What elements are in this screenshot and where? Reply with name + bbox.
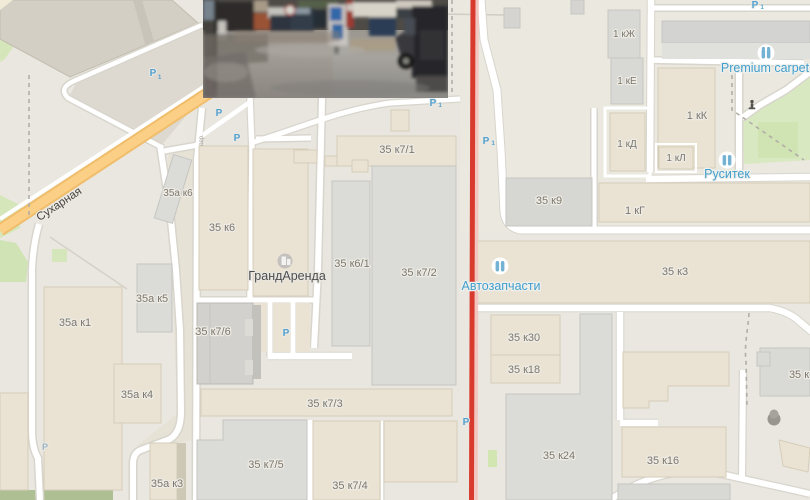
- svg-text:35 к7/3: 35 к7/3: [307, 398, 342, 410]
- svg-text:35а к1: 35а к1: [59, 317, 91, 329]
- svg-text:P: P: [463, 417, 470, 428]
- svg-text:P: P: [483, 136, 490, 147]
- svg-text:35 к7/1: 35 к7/1: [379, 144, 414, 156]
- svg-text:1 кЕ: 1 кЕ: [617, 76, 637, 87]
- svg-text:1 кГ: 1 кГ: [625, 205, 645, 217]
- svg-text:35 к6: 35 к6: [209, 222, 235, 234]
- svg-text:1 кД: 1 кД: [617, 139, 637, 150]
- svg-text:35 к7/4: 35 к7/4: [332, 480, 367, 492]
- svg-text:35а к5: 35а к5: [136, 293, 168, 305]
- svg-text:1 кЛ: 1 кЛ: [666, 153, 685, 164]
- svg-text:ГрандАренда: ГрандАренда: [248, 269, 326, 283]
- svg-text:P: P: [752, 0, 759, 11]
- svg-text:35а к6: 35а к6: [163, 188, 193, 199]
- svg-text:пер.: пер.: [199, 134, 205, 146]
- svg-text:35а к4: 35а к4: [121, 389, 153, 401]
- svg-text:P: P: [42, 442, 48, 452]
- svg-text:Автозапчасти: Автозапчасти: [462, 279, 541, 293]
- svg-text:P: P: [234, 133, 241, 144]
- svg-text:35 к24: 35 к24: [543, 450, 575, 462]
- svg-text:35а к3: 35а к3: [151, 478, 183, 490]
- svg-text:1 кК: 1 кК: [687, 110, 708, 122]
- svg-text:35 к6/1: 35 к6/1: [334, 258, 369, 270]
- svg-text:35 к: 35 к: [789, 369, 809, 381]
- svg-text:Руситек: Руситек: [704, 167, 750, 181]
- svg-text:35 к18: 35 к18: [508, 364, 540, 376]
- svg-text:P: P: [430, 98, 437, 109]
- svg-text:35 к30: 35 к30: [508, 332, 540, 344]
- svg-text:35 к7/6: 35 к7/6: [195, 326, 230, 338]
- svg-text:35 к7/5: 35 к7/5: [248, 459, 283, 471]
- svg-text:35 к7/2: 35 к7/2: [401, 267, 436, 279]
- svg-text:P: P: [283, 328, 290, 339]
- svg-text:35 к9: 35 к9: [536, 195, 562, 207]
- svg-text:35 к16: 35 к16: [647, 455, 679, 467]
- svg-text:Premium carpet: Premium carpet: [721, 61, 810, 75]
- svg-text:1 кЖ: 1 кЖ: [613, 29, 636, 40]
- svg-text:35 к3: 35 к3: [662, 266, 688, 278]
- svg-text:P: P: [150, 68, 157, 79]
- svg-text:P: P: [216, 108, 223, 119]
